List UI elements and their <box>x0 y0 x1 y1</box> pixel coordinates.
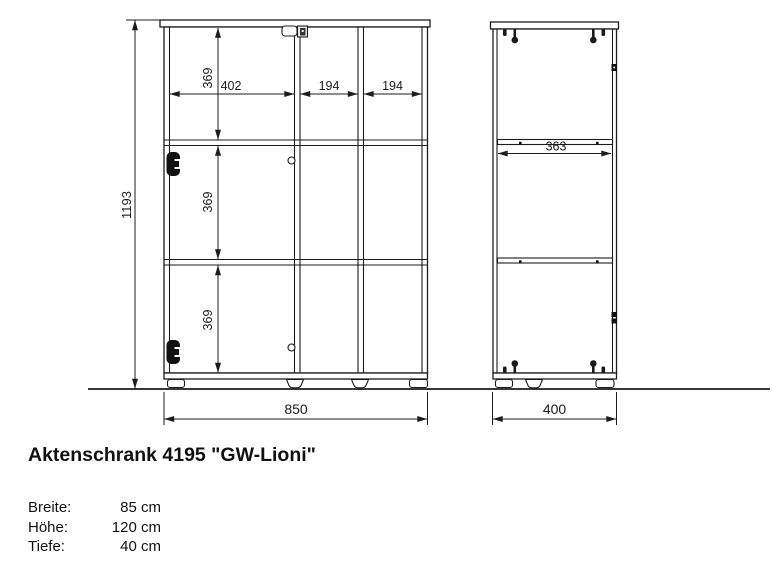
spec-row-height: Höhe:120 cm <box>28 518 161 538</box>
dowel-icon <box>602 367 606 374</box>
shelf-pin-icon <box>519 260 522 263</box>
front-base-strip <box>164 373 428 379</box>
hinge-plate-icon <box>612 312 618 317</box>
shelf-depth-dim-label: 363 <box>546 140 567 154</box>
side-foot-mid <box>526 380 543 388</box>
door-pin-icon <box>288 344 295 351</box>
depth-dim-label: 400 <box>543 401 567 417</box>
screw-head-icon <box>512 37 519 44</box>
row-dim-label: 369 <box>201 68 215 89</box>
front-foot-left <box>168 380 185 388</box>
side-carcass <box>493 29 617 373</box>
spec-value: 40 cm <box>90 537 161 557</box>
spec-value: 85 cm <box>90 498 161 518</box>
door-pin-icon <box>288 157 295 164</box>
screw-shaft-icon <box>592 366 595 374</box>
side-base-strip <box>493 373 617 379</box>
col-dim-label: 194 <box>382 79 403 93</box>
spec-label: Tiefe: <box>28 537 90 557</box>
dowel-icon <box>602 29 606 36</box>
side-feet <box>496 380 615 388</box>
shelf-pin-icon <box>519 142 522 145</box>
front-foot-mid-1 <box>287 380 304 388</box>
side-foot-left <box>496 380 513 388</box>
col-dim-label: 402 <box>221 79 242 93</box>
product-title: Aktenschrank 4195 "GW-Lioni" <box>28 444 316 467</box>
keyhole-icon <box>302 30 304 32</box>
spec-row-width: Breite:85 cm <box>28 498 161 518</box>
screw-shaft-icon <box>592 29 595 38</box>
handle-recess-icon <box>282 26 297 36</box>
col-dim-label: 194 <box>319 79 340 93</box>
dowel-icon <box>503 367 507 374</box>
spec-value: 120 cm <box>90 518 161 538</box>
row-dim-label: 369 <box>201 310 215 331</box>
dowel-icon <box>503 29 507 36</box>
shelf-pin-icon <box>596 260 599 263</box>
side-shelf-2 <box>498 258 613 263</box>
width-dim-label: 850 <box>284 401 308 417</box>
screw-shaft-icon <box>514 366 517 374</box>
hinge-icon <box>167 152 182 176</box>
product-specs: Breite:85 cm Höhe:120 cm Tiefe:40 cm <box>28 498 161 557</box>
hinge-plate-icon <box>612 319 618 324</box>
front-foot-mid-2 <box>352 380 369 388</box>
spec-label: Breite: <box>28 498 90 518</box>
side-foot-right <box>596 380 614 388</box>
screw-shaft-icon <box>514 29 517 38</box>
front-feet <box>168 380 428 388</box>
lock-detail <box>282 26 308 37</box>
technical-drawing-page: 1193 369 369 369 402 194 194 850 363 400… <box>0 0 772 579</box>
spec-row-depth: Tiefe:40 cm <box>28 537 161 557</box>
row-dim-label: 369 <box>201 192 215 213</box>
side-view <box>491 22 619 388</box>
height-dim-label: 1193 <box>119 191 134 219</box>
shelf-pin-icon <box>596 142 599 145</box>
front-foot-right <box>410 380 428 388</box>
screw-head-icon <box>590 37 597 44</box>
door-catch-dot <box>613 67 615 69</box>
dimension-drawing: 1193 369 369 369 402 194 194 850 363 400 <box>0 0 772 432</box>
side-top-panel <box>491 22 619 29</box>
hinge-icon <box>167 340 182 364</box>
spec-label: Höhe: <box>28 518 90 538</box>
